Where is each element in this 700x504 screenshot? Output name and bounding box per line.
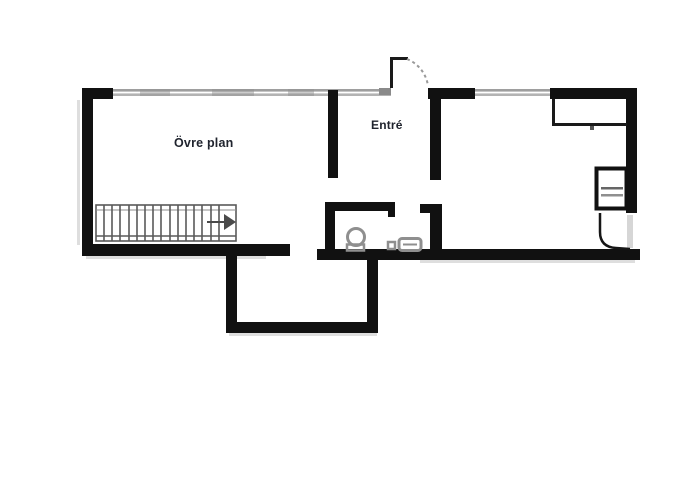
window-band-texture-3 [288, 89, 314, 96]
shadow-bottom-right [420, 260, 635, 263]
entry-door-leaf-top [390, 57, 408, 60]
wall-entry-right [430, 88, 441, 180]
wc-fixtures [347, 229, 421, 251]
shadow-left-wall [77, 100, 80, 245]
right-door-swing-icon [600, 213, 630, 249]
shadow-annex-bottom [229, 333, 377, 336]
wall-hall-right [430, 204, 442, 252]
wall-annex-left [226, 255, 237, 333]
entry-door-leaf [390, 57, 393, 88]
wall-top-left-stub [82, 88, 113, 99]
shadow-bottom-left [86, 256, 266, 259]
wardrobe-front-line [552, 123, 627, 126]
toilet-base [347, 245, 364, 251]
label-entrance: Entré [371, 118, 403, 132]
wall-bottom-right [317, 249, 640, 260]
wardrobe-door-tick [590, 126, 594, 130]
toilet-icon [347, 229, 365, 251]
shadow-right-door-gap [627, 215, 633, 248]
stairs-icon [96, 205, 236, 241]
appliance-line-1 [601, 187, 623, 190]
wall-top-right [550, 88, 637, 99]
wall-annex-bottom [226, 322, 378, 333]
wall-annex-right [367, 258, 378, 333]
entry-door-swing-icon [390, 57, 428, 88]
wall-left [82, 88, 93, 251]
wall-bottom-left [82, 244, 290, 256]
appliance-line-2 [601, 194, 623, 197]
floor-plan-page: Övre plan Entré [0, 0, 700, 504]
window-band-texture-2 [212, 89, 254, 96]
window-top-right-inner [475, 93, 550, 96]
wall-wc-top [325, 202, 395, 211]
window-band-texture-1 [140, 89, 170, 96]
window-band-end-cap [379, 88, 391, 95]
stairs-direction-arrow-icon [224, 214, 236, 230]
wardrobe-icon [552, 99, 627, 130]
appliance-icon [597, 169, 627, 209]
sink-icon [388, 239, 421, 251]
window-top-right-outer [475, 89, 550, 92]
entry-door-arc [407, 59, 428, 86]
wall-entry-left [328, 90, 338, 178]
wardrobe-left-line [552, 99, 555, 126]
label-upper-floor: Övre plan [174, 136, 233, 150]
floor-plan-drawing [0, 0, 700, 504]
wall-wc-end-cap [388, 211, 395, 217]
sink-tap [388, 242, 395, 249]
toilet-bowl [348, 229, 365, 246]
